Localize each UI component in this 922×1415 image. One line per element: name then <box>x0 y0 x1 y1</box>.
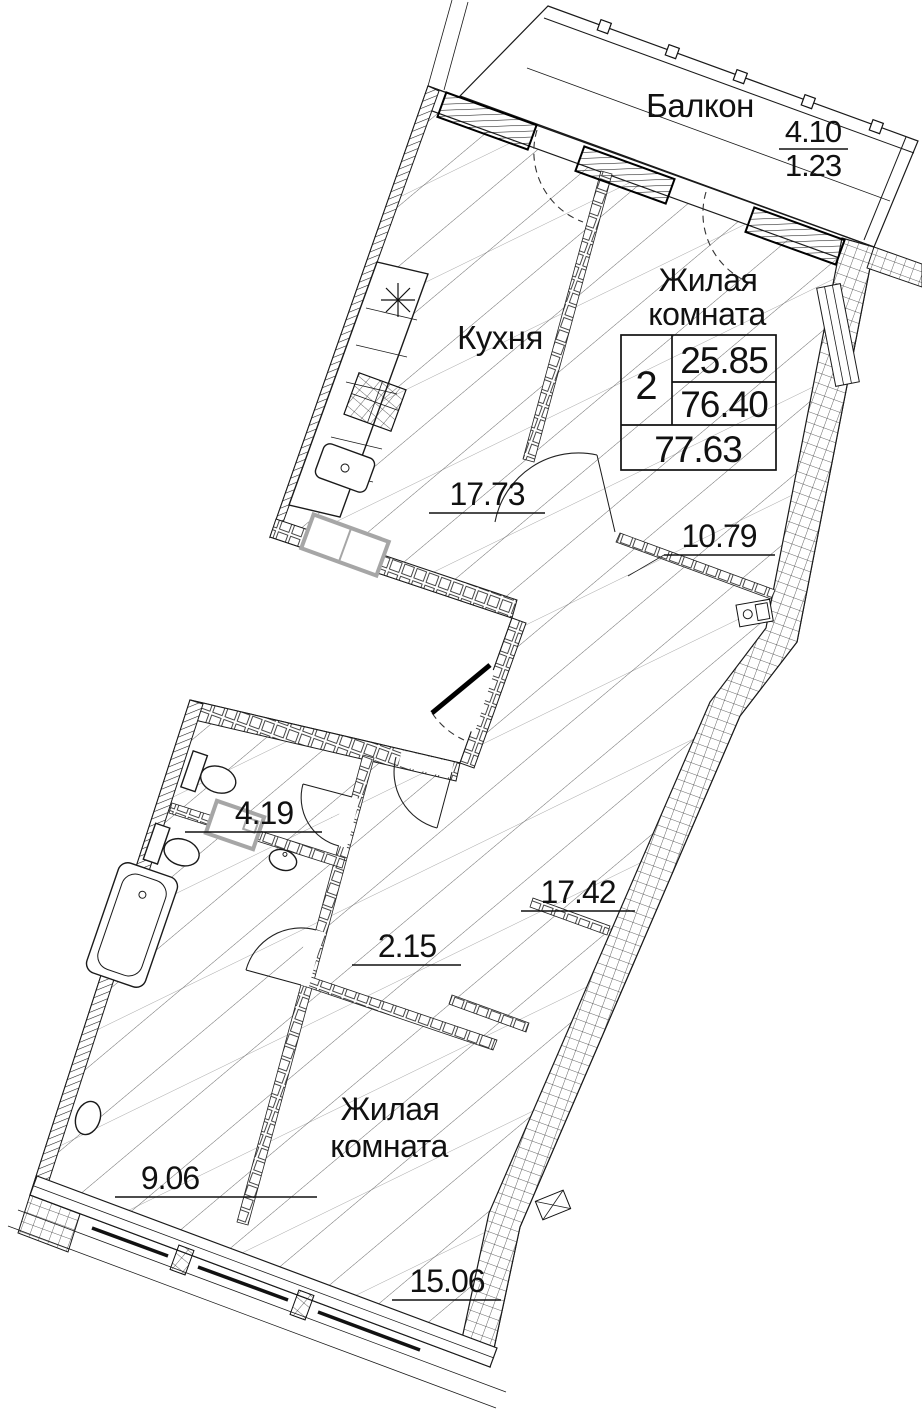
living-room-2-label-line2: комната <box>330 1128 448 1164</box>
right-wall-extension <box>867 247 922 287</box>
living-room-1-area: 10.79 <box>681 518 756 554</box>
living-room-1-label-line2: комната <box>648 296 766 332</box>
balcony-reduced-area: 1.23 <box>785 148 841 183</box>
kitchen-label: Кухня <box>457 319 543 356</box>
vent-shaft-2 <box>535 1190 570 1220</box>
stamp-total-area-with-balcony: 77.63 <box>654 429 742 470</box>
living-room-2-area: 15.06 <box>409 1263 484 1299</box>
bathroom-2-area: 9.06 <box>141 1160 199 1196</box>
stamp-rooms-count: 2 <box>635 364 656 408</box>
floor-plan-page: 2 25.85 76.40 77.63 Балкон 4.10 1.23 Кух… <box>0 0 922 1415</box>
hallway-area: 17.42 <box>540 874 615 910</box>
balcony-area: 4.10 <box>785 114 842 149</box>
cooktop-symbol <box>381 283 415 317</box>
kitchen-area: 17.73 <box>449 476 524 512</box>
window-pier-1 <box>170 1245 194 1275</box>
floor-plan-drawing: 2 25.85 76.40 77.63 Балкон 4.10 1.23 Кух… <box>0 0 922 1415</box>
bathroom-1-area: 4.19 <box>235 795 293 831</box>
window-pier-2 <box>290 1290 314 1320</box>
closet-area: 2.15 <box>378 928 436 964</box>
living-room-2-label-line1: Жилая <box>341 1091 440 1127</box>
stamp-living-area: 25.85 <box>680 340 768 381</box>
balcony-label: Балкон <box>646 87 754 124</box>
entry-door-arc <box>432 713 464 740</box>
stamp-total-area: 76.40 <box>680 384 768 425</box>
living-room-1-label-line1: Жилая <box>659 262 758 298</box>
